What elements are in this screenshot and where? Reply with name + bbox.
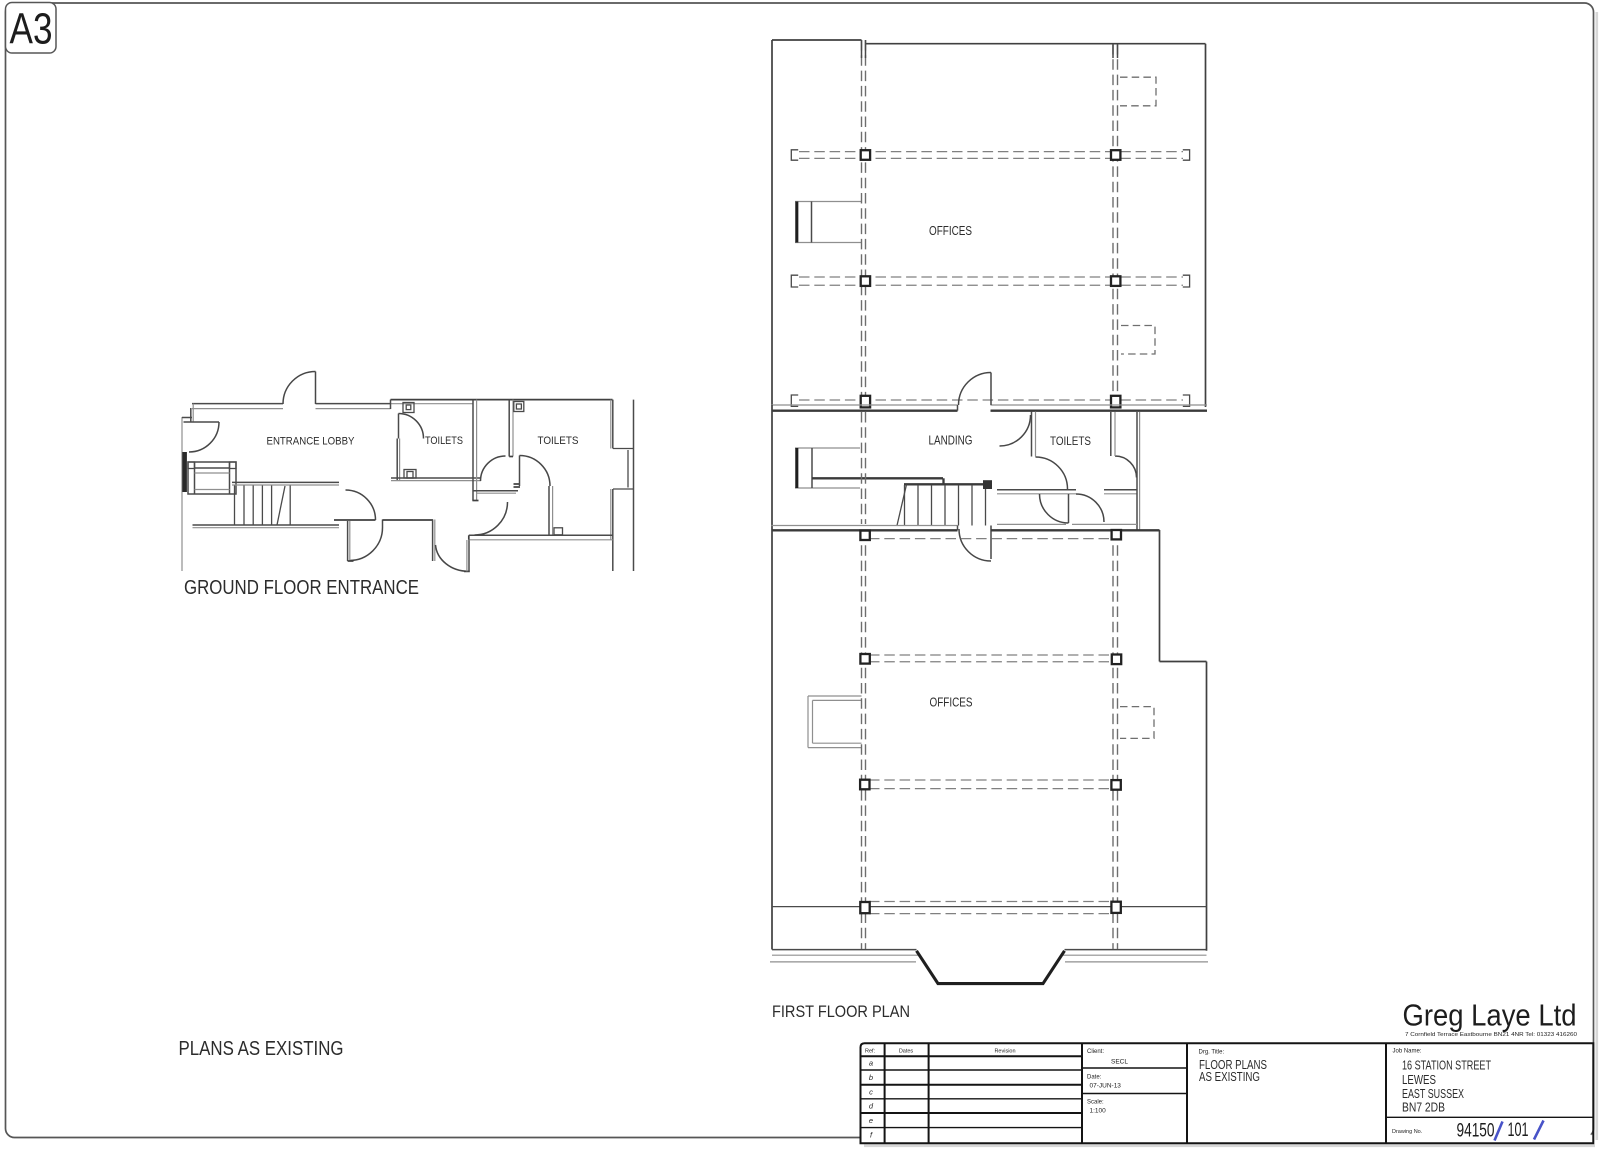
svg-text:SECL: SECL xyxy=(1111,1059,1128,1066)
svg-text:AS EXISTING: AS EXISTING xyxy=(1199,1069,1260,1084)
svg-text:e: e xyxy=(869,1116,873,1125)
svg-text:a: a xyxy=(869,1059,873,1068)
svg-text:Date:: Date: xyxy=(1087,1075,1102,1081)
svg-text:TOILETS: TOILETS xyxy=(538,435,579,447)
svg-text:16 STATION STREET: 16 STATION STREET xyxy=(1402,1059,1491,1073)
svg-text:OFFICES: OFFICES xyxy=(929,224,972,238)
svg-text:FIRST FLOOR PLAN: FIRST FLOOR PLAN xyxy=(772,1003,910,1021)
svg-text:Drawing No.: Drawing No. xyxy=(1392,1129,1423,1135)
svg-text:Greg Laye Ltd: Greg Laye Ltd xyxy=(1403,998,1577,1033)
svg-text:Scale:: Scale: xyxy=(1087,1100,1104,1106)
svg-text:Revision: Revision xyxy=(994,1049,1015,1055)
svg-text:94150: 94150 xyxy=(1457,1121,1495,1142)
svg-text:OFFICES: OFFICES xyxy=(930,695,973,709)
svg-text:GROUND FLOOR ENTRANCE: GROUND FLOOR ENTRANCE xyxy=(184,576,419,599)
svg-text:PLANS AS EXISTING: PLANS AS EXISTING xyxy=(179,1038,344,1060)
svg-text:TOILETS: TOILETS xyxy=(1050,436,1091,448)
svg-text:b: b xyxy=(869,1073,873,1082)
svg-text:LANDING: LANDING xyxy=(929,433,973,447)
svg-text:Ref:: Ref: xyxy=(865,1049,876,1055)
svg-text:Dates: Dates xyxy=(899,1049,914,1055)
svg-text:Drg. Title:: Drg. Title: xyxy=(1199,1050,1225,1056)
svg-text:7 Cornfield Terrace Eastbourne: 7 Cornfield Terrace Eastbourne BN21 4NR … xyxy=(1405,1032,1577,1038)
svg-text:Client:: Client: xyxy=(1087,1049,1104,1055)
svg-text:1:100: 1:100 xyxy=(1090,1107,1107,1114)
svg-text:Job Name:: Job Name: xyxy=(1393,1049,1422,1055)
svg-text:101: 101 xyxy=(1508,1120,1529,1141)
svg-text:07-JUN-13: 07-JUN-13 xyxy=(1090,1082,1122,1089)
svg-text:c: c xyxy=(869,1088,873,1097)
svg-text:LEWES: LEWES xyxy=(1402,1073,1436,1087)
svg-text:ENTRANCE LOBBY: ENTRANCE LOBBY xyxy=(267,436,355,448)
svg-text:A3: A3 xyxy=(10,5,53,54)
svg-text:TOILETS: TOILETS xyxy=(425,435,463,447)
svg-text:EAST SUSSEX: EAST SUSSEX xyxy=(1402,1087,1464,1101)
svg-text:BN7 2DB: BN7 2DB xyxy=(1402,1101,1445,1115)
